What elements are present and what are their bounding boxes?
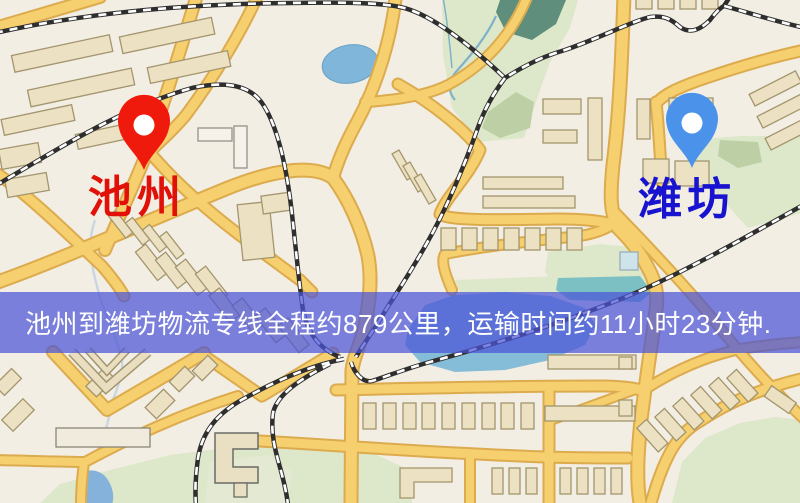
weifang-label: 潍坊 — [638, 178, 736, 222]
map-canvas: 池州 潍坊 池州到潍坊物流专线全程约879公里，运输时间约11小时23分钟. — [0, 0, 800, 503]
chizhou-label: 池州 — [88, 176, 186, 220]
map-image — [0, 0, 800, 503]
route-info-banner: 池州到潍坊物流专线全程约879公里，运输时间约11小时23分钟. — [0, 292, 800, 353]
route-info-text: 池州到潍坊物流专线全程约879公里，运输时间约11小时23分钟. — [25, 304, 772, 341]
